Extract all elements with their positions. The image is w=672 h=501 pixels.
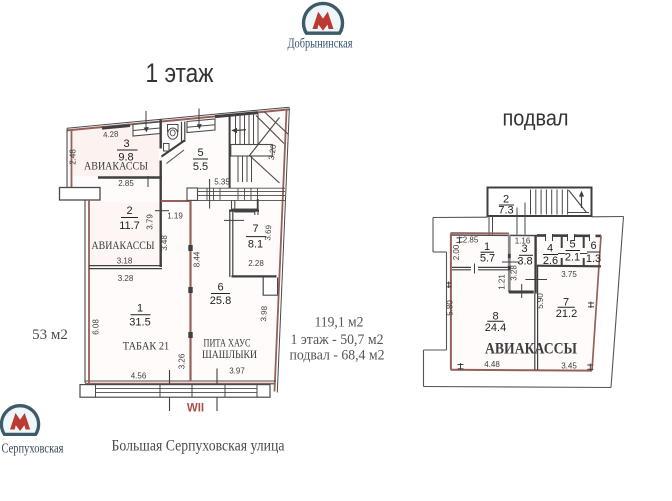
svg-text:4: 4 [547,243,553,255]
svg-text:3.69: 3.69 [263,224,273,241]
svg-text:Добрынинская: Добрынинская [288,36,353,51]
svg-text:АВИАКАССЫ: АВИАКАССЫ [485,341,577,358]
svg-text:3.98: 3.98 [259,305,269,322]
svg-text:1: 1 [484,241,490,253]
svg-text:ТАБАК 21: ТАБАК 21 [123,339,170,353]
svg-text:5: 5 [569,239,575,251]
svg-text:1 этаж: 1 этаж [146,58,214,88]
svg-text:5.35: 5.35 [214,178,230,187]
svg-text:3.79: 3.79 [146,214,155,230]
svg-text:5.7: 5.7 [480,253,495,265]
svg-text:7.3: 7.3 [498,205,513,217]
svg-text:3.48: 3.48 [160,235,169,251]
svg-text:8: 8 [492,310,498,322]
svg-text:3.97: 3.97 [229,367,245,376]
svg-text:24.4: 24.4 [485,322,506,334]
svg-text:2.6: 2.6 [543,255,558,267]
svg-text:3.8: 3.8 [517,256,532,268]
svg-text:Большая Серпуховская улица: Большая Серпуховская улица [112,438,285,455]
svg-text:2.00: 2.00 [452,244,461,260]
svg-text:1.21: 1.21 [498,274,507,290]
svg-text:АВИАКАССЫ: АВИАКАССЫ [92,238,155,252]
svg-text:2.85: 2.85 [463,236,479,245]
svg-text:21.2: 21.2 [556,308,577,320]
svg-text:4.56: 4.56 [131,371,147,380]
svg-text:5.90: 5.90 [536,293,545,309]
svg-text:1.3: 1.3 [586,253,601,265]
svg-text:3.26: 3.26 [178,353,187,369]
svg-text:5.5: 5.5 [193,161,208,173]
svg-text:2.48: 2.48 [69,149,78,165]
svg-text:53 м2: 53 м2 [32,327,68,343]
svg-text:ШАШЛЫКИ: ШАШЛЫКИ [202,347,257,361]
svg-text:7: 7 [563,296,569,308]
svg-text:8.44: 8.44 [193,251,202,267]
svg-text:3.75: 3.75 [561,270,577,279]
svg-text:11.7: 11.7 [119,220,140,232]
svg-text:подвал: подвал [503,105,569,130]
svg-text:WII: WII [187,403,204,415]
svg-text:1.19: 1.19 [167,211,183,220]
svg-text:8.1: 8.1 [248,238,263,250]
svg-text:31.5: 31.5 [129,317,150,329]
svg-text:7: 7 [252,223,258,235]
svg-text:4.48: 4.48 [484,360,500,369]
svg-text:4.28: 4.28 [103,129,120,139]
svg-text:3: 3 [123,138,129,150]
svg-text:подвал - 68,4 м2: подвал - 68,4 м2 [290,348,385,364]
svg-text:3.28: 3.28 [118,274,134,283]
svg-text:1: 1 [137,303,143,315]
svg-text:3.28: 3.28 [510,265,519,281]
svg-text:2: 2 [126,205,132,217]
svg-text:3.18: 3.18 [117,257,133,266]
svg-text:Серпуховская: Серпуховская [2,441,64,456]
svg-text:1.16: 1.16 [515,237,531,246]
svg-text:6: 6 [217,282,223,294]
svg-text:АВИАКАССЫ: АВИАКАССЫ [84,159,148,173]
svg-text:2.28: 2.28 [248,259,264,268]
svg-text:5: 5 [197,147,203,159]
svg-text:6: 6 [590,240,596,252]
svg-text:1 этаж - 50,7 м2: 1 этаж - 50,7 м2 [291,332,384,348]
svg-text:2.1: 2.1 [565,252,580,264]
svg-text:6.08: 6.08 [92,319,101,335]
svg-text:3.45: 3.45 [561,362,577,371]
svg-text:25.8: 25.8 [210,295,231,307]
svg-text:5.80: 5.80 [445,300,454,316]
svg-text:2.85: 2.85 [118,179,134,188]
svg-text:119,1 м2: 119,1 м2 [315,315,364,331]
